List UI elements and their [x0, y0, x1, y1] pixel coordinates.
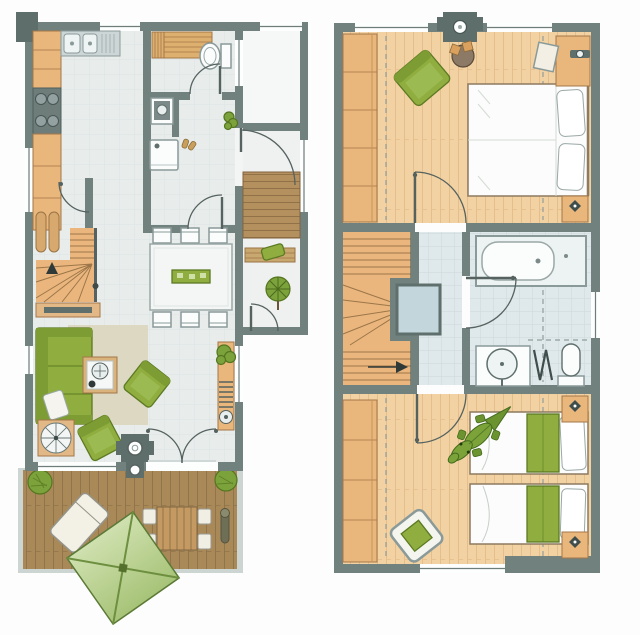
dining-chair: [181, 228, 199, 243]
patio-heater: [221, 509, 230, 544]
nightstand: [562, 196, 588, 222]
nightstand: [562, 532, 588, 558]
shelf-with-plant: [217, 342, 236, 430]
dining-chair: [153, 228, 171, 243]
wall: [411, 336, 419, 385]
seat-cushion: [143, 509, 156, 524]
skylight: [397, 285, 440, 334]
wall: [25, 22, 33, 470]
floor-plan-drawing: [0, 0, 640, 635]
wall: [334, 23, 343, 573]
double-sink: [61, 31, 120, 56]
porch-store-floor: [243, 31, 300, 123]
dining-chair: [181, 312, 199, 327]
wardrobe: [343, 34, 377, 222]
cooktop: [33, 88, 61, 134]
french-door-opening: [146, 462, 218, 471]
floor-plan-page: [0, 0, 640, 635]
sideboard: [36, 303, 100, 317]
wall: [222, 92, 243, 100]
coffee-table: [83, 357, 117, 393]
pillow: [556, 89, 585, 137]
dining-chair: [153, 312, 171, 327]
pillow: [557, 143, 585, 190]
seat-cushion: [198, 509, 211, 524]
wall: [462, 232, 470, 276]
chimney: [437, 12, 483, 42]
wardrobe: [343, 400, 377, 562]
nightstand: [562, 396, 588, 422]
wall: [85, 178, 93, 235]
round-side-table: [38, 420, 74, 456]
toilet: [200, 43, 231, 69]
wall: [143, 22, 151, 225]
newel-post: [93, 283, 99, 289]
wall: [235, 22, 243, 470]
toilet: [558, 344, 584, 386]
wall: [462, 328, 470, 385]
handrail: [94, 228, 97, 302]
pillow: [560, 415, 587, 470]
washbasin: [151, 98, 173, 124]
washing-machine: [150, 140, 178, 170]
wall: [411, 232, 419, 278]
dining-area: [150, 228, 232, 327]
terrace: [18, 468, 243, 634]
seat-cushion: [198, 534, 211, 549]
wall: [243, 123, 308, 131]
double-bed: [468, 84, 588, 196]
dining-chair: [209, 312, 227, 327]
upper-floor-plan: [334, 12, 600, 573]
table-runner: [172, 270, 210, 283]
ground-floor-plan: [16, 12, 308, 634]
wall: [466, 223, 600, 232]
porch-deck: [243, 172, 300, 238]
washbasin-vanity: [476, 346, 530, 386]
dining-chair: [209, 228, 227, 243]
wall: [334, 223, 415, 232]
wall: [334, 385, 417, 394]
wall: [243, 327, 308, 335]
kitchen-counter: [33, 31, 61, 88]
stool: [534, 42, 559, 72]
